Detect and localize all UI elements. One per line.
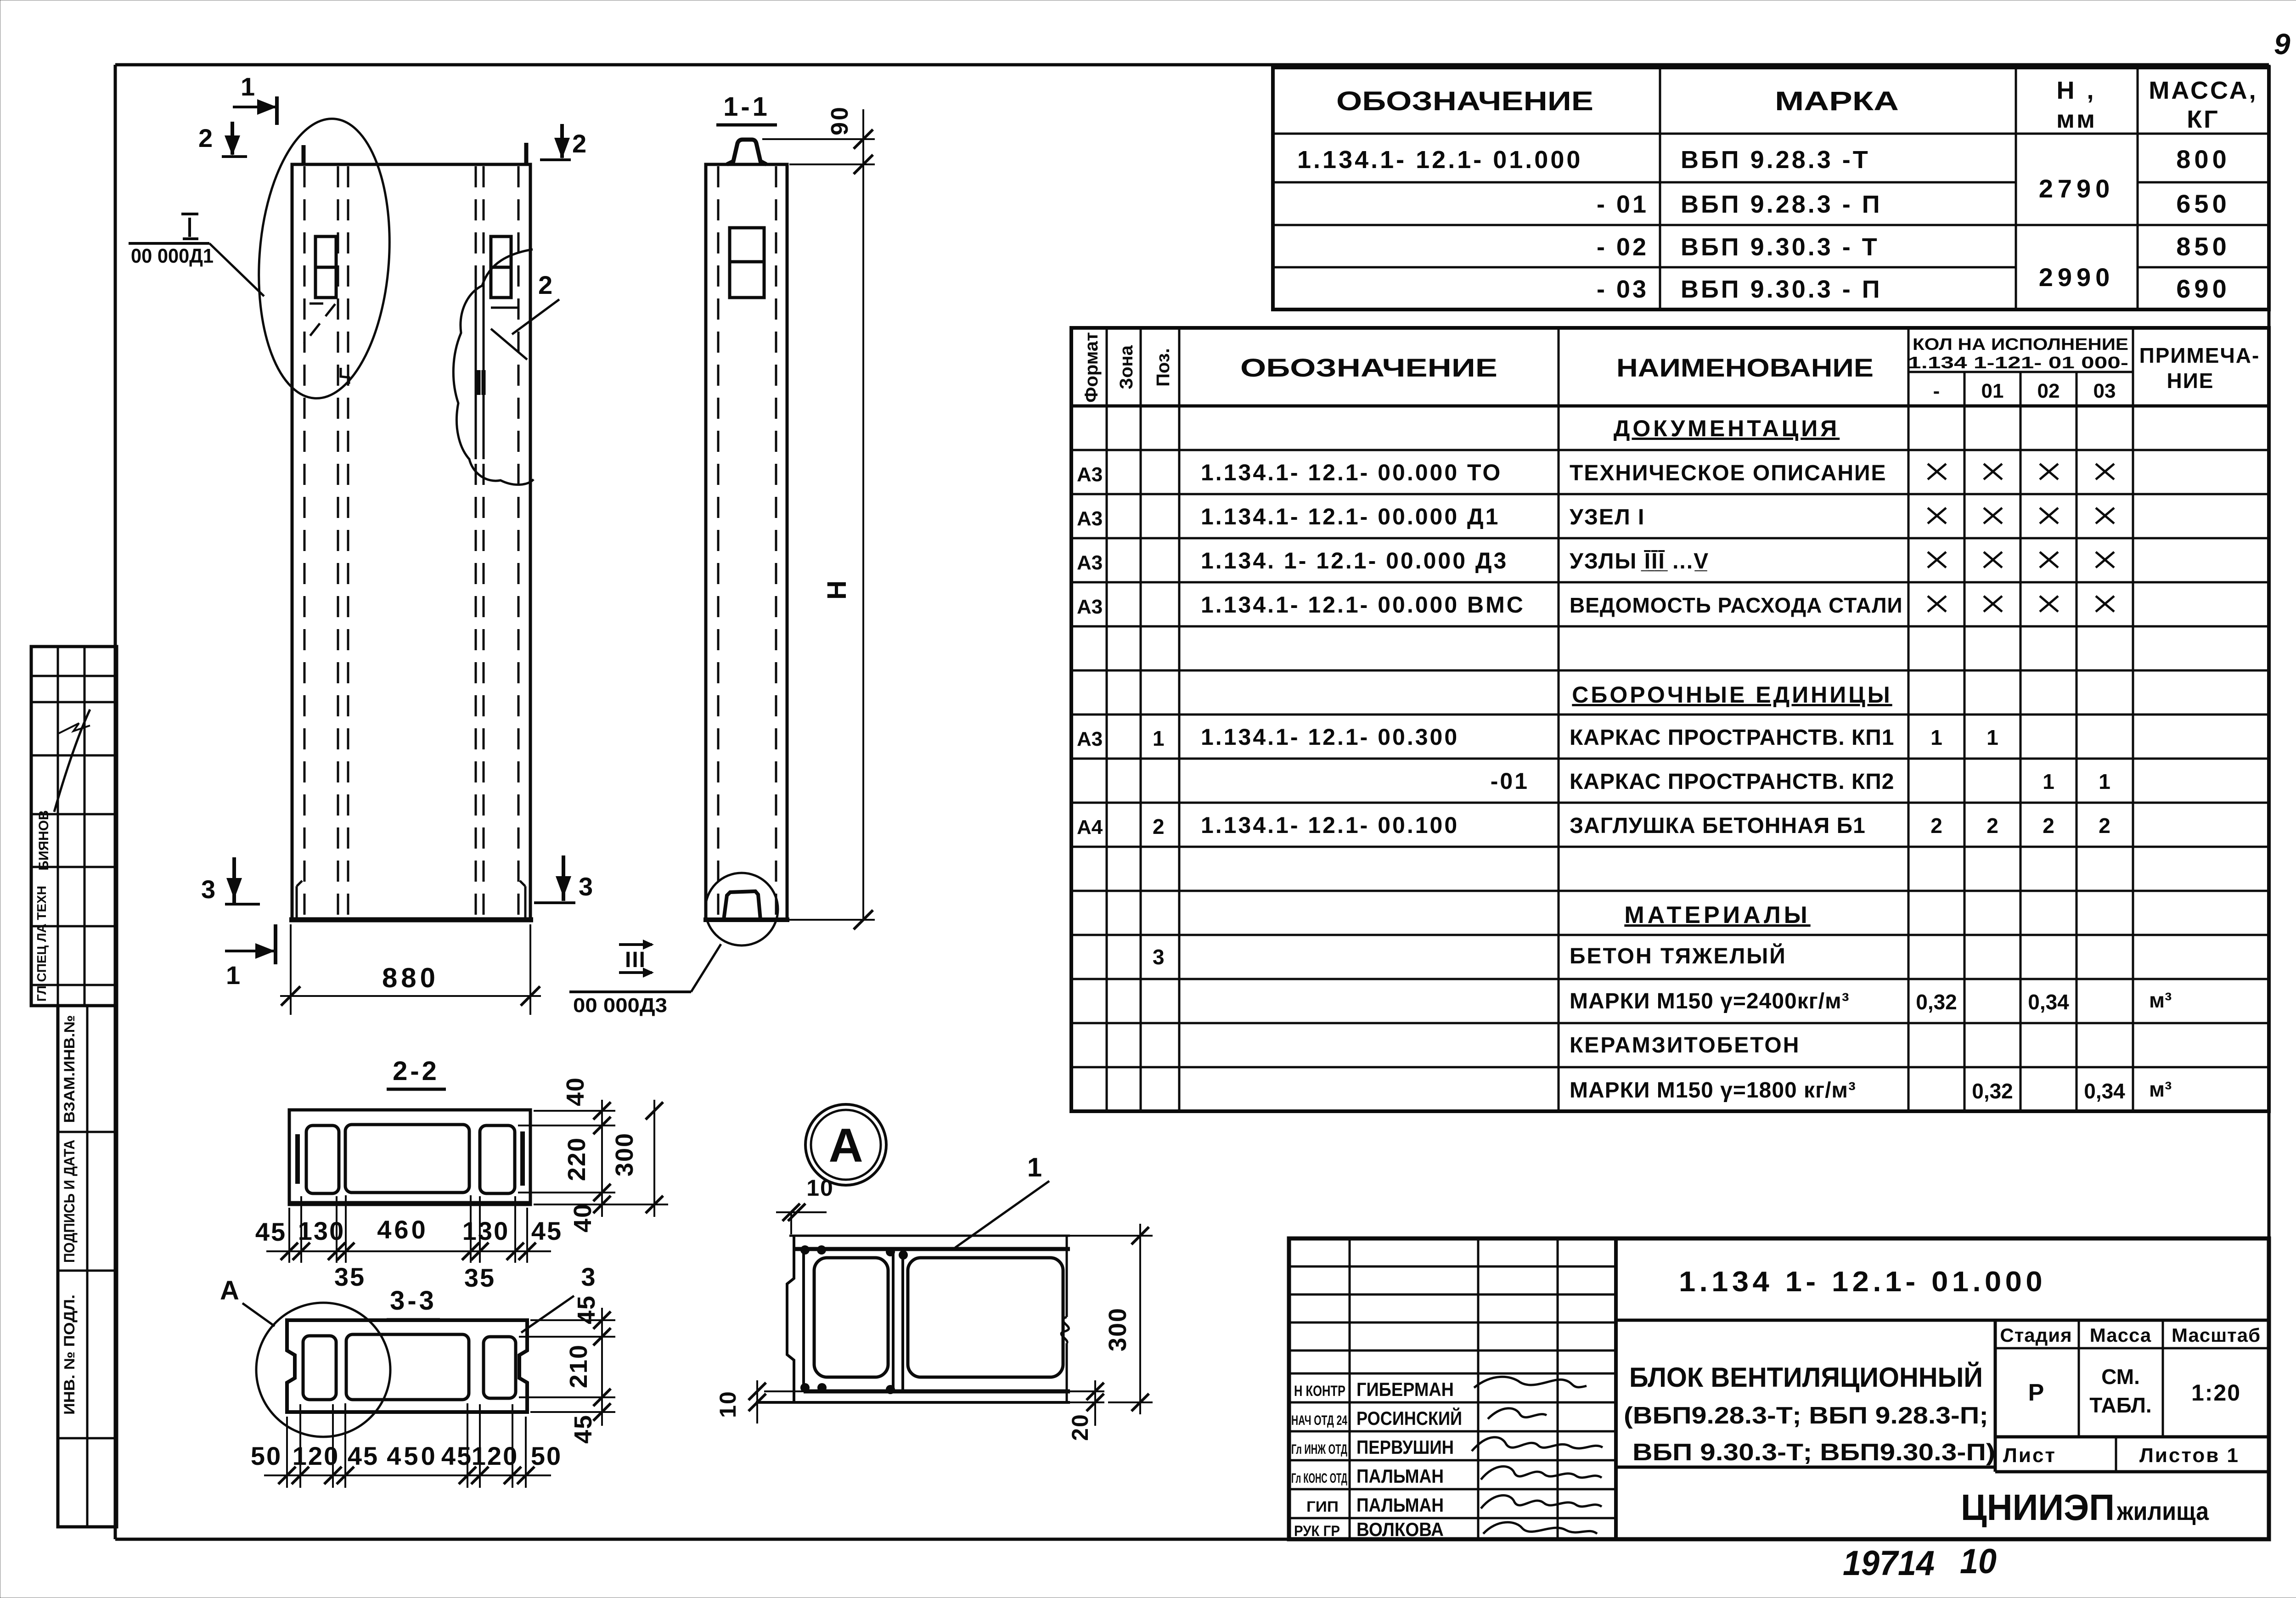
svg-text:СМ.: СМ. (2101, 1365, 2140, 1389)
svg-text:УЗЛЫ Ī̲Ī̲Ī̲ ...V̲: УЗЛЫ Ī̲Ī̲Ī̲ ...V̲ (1570, 549, 1709, 574)
svg-text:ПЕРВУШИН: ПЕРВУШИН (1356, 1436, 1454, 1458)
svg-text:10: 10 (715, 1390, 741, 1418)
svg-text:2: 2 (1153, 815, 1165, 838)
svg-text:1: 1 (2043, 770, 2054, 793)
svg-text:ГЛ СПЕЦ ЛА ТЕХН: ГЛ СПЕЦ ЛА ТЕХН (34, 886, 49, 1002)
svg-text:МАРКА: МАРКА (1775, 86, 1899, 116)
svg-text:КЕРАМЗИТОБЕТОН: КЕРАМЗИТОБЕТОН (1570, 1033, 1800, 1058)
svg-text:3: 3 (581, 1262, 595, 1291)
svg-text:м³: м³ (2149, 988, 2172, 1012)
svg-text:19714: 19714 (1843, 1544, 1935, 1583)
svg-text:1.134. 1- 12.1- 00.000 Д3: 1.134. 1- 12.1- 00.000 Д3 (1201, 548, 1508, 574)
svg-text:РУК ГР: РУК ГР (1294, 1523, 1340, 1539)
svg-text:мм: мм (2056, 106, 2097, 133)
svg-text:ВЕДОМОСТЬ РАСХОДА СТАЛИ: ВЕДОМОСТЬ РАСХОДА СТАЛИ (1570, 593, 1903, 617)
svg-text:Н ,: Н , (2056, 77, 2096, 104)
svg-text:50: 50 (531, 1441, 562, 1470)
svg-text:Лист: Лист (2003, 1444, 2056, 1467)
svg-text:ВБП 9.30.3 - Т: ВБП 9.30.3 - Т (1681, 233, 1880, 261)
svg-text:1.134.1- 12.1- 00.000 ВМС: 1.134.1- 12.1- 00.000 ВМС (1201, 592, 1525, 618)
svg-text:1.134 1-121- 01 000-: 1.134 1-121- 01 000- (1908, 353, 2128, 372)
svg-text:- 02: - 02 (1597, 233, 1649, 261)
svg-text:ОБОЗНАЧЕНИЕ: ОБОЗНАЧЕНИЕ (1240, 353, 1497, 382)
svg-text:МАССА,: МАССА, (2149, 77, 2257, 104)
svg-text:1.134.1- 12.1- 01.000: 1.134.1- 12.1- 01.000 (1297, 146, 1582, 174)
svg-text:300: 300 (1104, 1307, 1131, 1351)
svg-text:2: 2 (198, 124, 213, 152)
svg-text:МАТЕРИАЛЫ: МАТЕРИАЛЫ (1624, 902, 1810, 928)
svg-text:35: 35 (334, 1262, 366, 1291)
svg-text:2990: 2990 (2039, 263, 2115, 292)
svg-text:120: 120 (472, 1441, 518, 1470)
svg-text:БЕТОН ТЯЖЕЛЫЙ: БЕТОН ТЯЖЕЛЫЙ (1570, 943, 1787, 968)
svg-text:45: 45 (531, 1216, 563, 1245)
svg-text:ЗАГЛУШКА БЕТОННАЯ Б1: ЗАГЛУШКА БЕТОННАЯ Б1 (1570, 814, 1866, 838)
svg-text:БЛОК ВЕНТИЛЯЦИОННЫЙ: БЛОК ВЕНТИЛЯЦИОННЫЙ (1629, 1362, 1983, 1393)
svg-text:130: 130 (298, 1216, 345, 1245)
svg-text:УЗЕЛ I: УЗЕЛ I (1570, 505, 1645, 529)
svg-text:ЦНИИЭП: ЦНИИЭП (1961, 1487, 2115, 1528)
svg-text:А3: А3 (1077, 551, 1103, 574)
svg-text:1: 1 (1986, 726, 1998, 749)
svg-text:650: 650 (2176, 189, 2230, 218)
svg-text:50: 50 (251, 1441, 282, 1470)
svg-text:3: 3 (579, 872, 593, 901)
svg-text:КГ: КГ (2187, 106, 2220, 133)
svg-text:45: 45 (569, 1414, 597, 1444)
svg-text:- 01: - 01 (1597, 191, 1649, 218)
svg-text:03: 03 (2093, 380, 2116, 402)
svg-text:А3: А3 (1077, 507, 1103, 530)
svg-text:10: 10 (806, 1175, 834, 1201)
svg-text:3-3: 3-3 (390, 1286, 437, 1316)
svg-text:КАРКАС ПРОСТРАНСТВ. КП1: КАРКАС ПРОСТРАНСТВ. КП1 (1570, 726, 1895, 750)
svg-text:ВЗАМ.ИНВ.№: ВЗАМ.ИНВ.№ (61, 1015, 78, 1123)
svg-text:2790: 2790 (2039, 174, 2115, 203)
svg-text:Гл ИНЖ ОТД: Гл ИНЖ ОТД (1291, 1442, 1347, 1457)
svg-text:КАРКАС ПРОСТРАНСТВ. КП2: КАРКАС ПРОСТРАНСТВ. КП2 (1570, 770, 1895, 794)
svg-text:жилища: жилища (2116, 1497, 2209, 1525)
svg-text:3: 3 (1153, 945, 1165, 969)
svg-text:45: 45 (441, 1441, 473, 1470)
svg-text:1.134 1- 12.1- 01.000: 1.134 1- 12.1- 01.000 (1679, 1266, 2046, 1298)
svg-text:690: 690 (2176, 274, 2230, 303)
svg-text:ВБП 9.28.3 -Т: ВБП 9.28.3 -Т (1681, 146, 1870, 174)
svg-text:ДОКУМЕНТАЦИЯ: ДОКУМЕНТАЦИЯ (1614, 416, 1840, 441)
svg-text:Поз.: Поз. (1153, 348, 1173, 387)
svg-text:ВОЛКОВА: ВОЛКОВА (1356, 1519, 1444, 1540)
svg-text:ИНВ. № ПОДЛ.: ИНВ. № ПОДЛ. (61, 1294, 78, 1415)
svg-text:2: 2 (1930, 814, 1942, 838)
svg-text:Масса: Масса (2090, 1324, 2151, 1346)
svg-text:90: 90 (827, 105, 853, 135)
svg-text:ОБОЗНАЧЕНИЕ: ОБОЗНАЧЕНИЕ (1336, 86, 1593, 116)
svg-text:20: 20 (1067, 1413, 1093, 1441)
svg-text:10: 10 (1960, 1542, 1997, 1581)
svg-text:ПАЛЬМАН: ПАЛЬМАН (1356, 1465, 1444, 1487)
svg-text:Стадия: Стадия (2000, 1324, 2072, 1346)
svg-text:300: 300 (611, 1132, 638, 1176)
svg-text:(ВБП9.28.3-Т; ВБП 9.28.3-П;: (ВБП9.28.3-Т; ВБП 9.28.3-П; (1624, 1402, 1988, 1429)
svg-text:ТЕХНИЧЕСКОЕ ОПИСАНИЕ: ТЕХНИЧЕСКОЕ ОПИСАНИЕ (1570, 461, 1887, 485)
svg-text:2: 2 (2043, 814, 2054, 838)
svg-text:Н: Н (822, 580, 852, 600)
svg-text:40: 40 (562, 1077, 589, 1106)
svg-text:А: А (220, 1276, 239, 1305)
svg-text:А4: А4 (1077, 816, 1103, 838)
svg-text:1: 1 (1930, 726, 1942, 749)
svg-text:210: 210 (565, 1344, 592, 1388)
svg-text:0,32: 0,32 (1916, 990, 1957, 1014)
svg-text:ВБП 9.30.3 - П: ВБП 9.30.3 - П (1681, 276, 1882, 303)
svg-text:01: 01 (1981, 380, 2004, 402)
svg-text:-01: -01 (1491, 768, 1529, 794)
svg-text:ПОДПИСЬ И ДАТА: ПОДПИСЬ И ДАТА (61, 1140, 78, 1263)
svg-text:Зона: Зона (1116, 345, 1137, 389)
svg-text:Масштаб: Масштаб (2172, 1324, 2261, 1346)
svg-text:БИЯНОВ: БИЯНОВ (36, 810, 51, 870)
svg-text:2-2: 2-2 (393, 1056, 439, 1086)
svg-text:850: 850 (2176, 232, 2230, 261)
svg-text:460: 460 (377, 1215, 428, 1244)
svg-text:880: 880 (382, 962, 439, 993)
svg-text:2: 2 (538, 270, 552, 299)
svg-text:2: 2 (572, 129, 586, 158)
svg-text:1-1: 1-1 (723, 92, 770, 122)
svg-text:1.134.1- 12.1- 00.000 Д1: 1.134.1- 12.1- 00.000 Д1 (1201, 504, 1500, 529)
svg-text:0,34: 0,34 (2028, 990, 2069, 1014)
svg-text:Гл КОНС ОТД: Гл КОНС ОТД (1291, 1471, 1347, 1486)
svg-text:00 000Д3: 00 000Д3 (573, 994, 667, 1017)
svg-text:-: - (1933, 380, 1940, 402)
svg-text:45: 45 (348, 1441, 379, 1470)
svg-text:35: 35 (464, 1263, 495, 1292)
svg-text:КОЛ НА ИСПОЛНЕНИЕ: КОЛ НА ИСПОЛНЕНИЕ (1913, 335, 2128, 354)
svg-text:ПАЛЬМАН: ПАЛЬМАН (1356, 1494, 1444, 1516)
svg-text:45: 45 (573, 1295, 600, 1324)
svg-text:45: 45 (255, 1217, 287, 1246)
svg-text:2: 2 (2099, 814, 2110, 838)
svg-text:1: 1 (241, 72, 255, 101)
svg-text:НАИМЕНОВАНИЕ: НАИМЕНОВАНИЕ (1616, 353, 1874, 382)
svg-text:ПРИМЕЧА-: ПРИМЕЧА- (2139, 343, 2260, 367)
svg-text:МАРКИ М150 γ=2400кг/м³: МАРКИ М150 γ=2400кг/м³ (1570, 989, 1850, 1013)
svg-text:Р: Р (2028, 1379, 2044, 1406)
svg-text:Н КОНТР: Н КОНТР (1294, 1383, 1345, 1399)
svg-text:А3: А3 (1077, 728, 1103, 750)
svg-text:1.134.1- 12.1- 00.300: 1.134.1- 12.1- 00.300 (1201, 724, 1459, 750)
svg-text:0,32: 0,32 (1972, 1079, 2013, 1103)
svg-text:1: 1 (226, 961, 240, 990)
svg-text:1.134.1- 12.1- 00.100: 1.134.1- 12.1- 00.100 (1201, 812, 1459, 838)
svg-text:2: 2 (1986, 814, 1998, 838)
svg-text:3: 3 (201, 875, 215, 904)
svg-text:1: 1 (1153, 726, 1165, 750)
svg-text:Формат: Формат (1081, 332, 1102, 402)
svg-text:ВБП 9.30.3-Т; ВБП9.30.3-П): ВБП 9.30.3-Т; ВБП9.30.3-П) (1632, 1439, 1995, 1466)
svg-text:120: 120 (293, 1441, 339, 1470)
svg-text:1.134.1- 12.1- 00.000 ТО: 1.134.1- 12.1- 00.000 ТО (1201, 460, 1502, 485)
svg-text:00 000Д1: 00 000Д1 (131, 245, 214, 267)
svg-text:Листов 1: Листов 1 (2139, 1444, 2240, 1467)
svg-text:130: 130 (462, 1216, 509, 1245)
svg-text:А3: А3 (1077, 596, 1103, 618)
svg-text:ГИП: ГИП (1306, 1498, 1339, 1515)
svg-text:А: А (828, 1119, 863, 1172)
svg-text:1: 1 (1027, 1153, 1042, 1182)
svg-text:СБОРОЧНЫЕ ЕДИНИЦЫ: СБОРОЧНЫЕ ЕДИНИЦЫ (1572, 682, 1892, 708)
svg-text:02: 02 (2037, 380, 2060, 402)
svg-text:РОСИНСКИЙ: РОСИНСКИЙ (1356, 1407, 1462, 1429)
svg-text:220: 220 (563, 1137, 591, 1181)
svg-text:0,34: 0,34 (2084, 1079, 2125, 1103)
svg-text:- 03: - 03 (1597, 276, 1649, 303)
svg-text:1:20: 1:20 (2191, 1380, 2241, 1406)
svg-text:НАЧ ОТД 24: НАЧ ОТД 24 (1291, 1413, 1347, 1428)
svg-text:А3: А3 (1077, 463, 1103, 486)
svg-text:м³: м³ (2149, 1077, 2172, 1101)
svg-text:800: 800 (2176, 145, 2230, 174)
svg-text:450: 450 (387, 1441, 438, 1470)
svg-text:40: 40 (569, 1203, 597, 1232)
svg-text:ВБП 9.28.3 - П: ВБП 9.28.3 - П (1681, 191, 1882, 218)
svg-text:МАРКИ М150 γ=1800 кг/м³: МАРКИ М150 γ=1800 кг/м³ (1570, 1078, 1856, 1103)
svg-text:ГИБЕРМАН: ГИБЕРМАН (1356, 1379, 1454, 1400)
svg-text:9: 9 (2274, 28, 2290, 61)
svg-text:НИЕ: НИЕ (2167, 369, 2214, 393)
svg-text:ТАБЛ.: ТАБЛ. (2089, 1393, 2151, 1417)
svg-text:1: 1 (2099, 770, 2110, 793)
